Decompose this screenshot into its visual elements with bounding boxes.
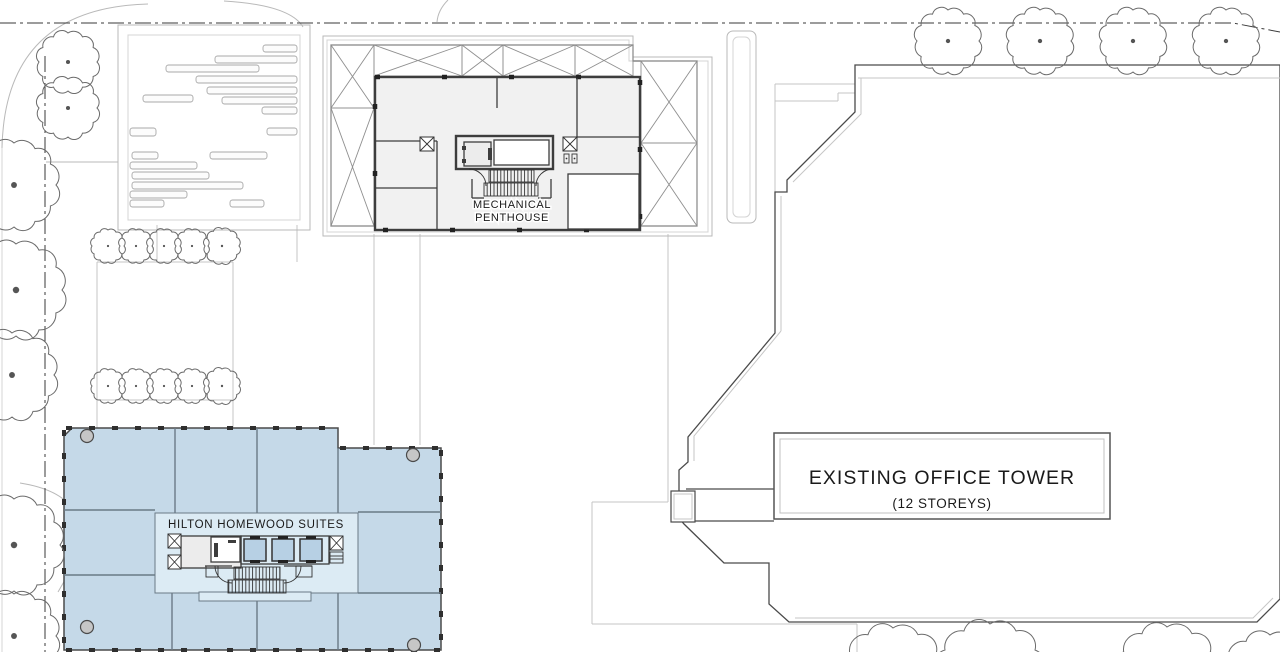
hotel-label: HILTON HOMEWOOD SUITES <box>168 519 344 531</box>
curb-arc-top-left <box>2 4 148 148</box>
elevator-cab <box>272 539 294 561</box>
penthouse-label-line1: MECHANICAL <box>473 199 551 211</box>
hedge-bed <box>97 225 297 428</box>
tree-icon <box>204 228 241 265</box>
office-tower: EXISTING OFFICE TOWER (12 STOREYS) <box>671 65 1280 622</box>
site-plan-drawing: EXISTING OFFICE TOWER (12 STOREYS) <box>0 0 1280 652</box>
hotel-shaft-left-bottom <box>168 555 181 569</box>
column <box>407 449 420 462</box>
mechanical-penthouse: MECHANICAL PENTHOUSE <box>323 36 712 236</box>
tree-icon <box>0 139 60 230</box>
tower-subtitle: (12 STOREYS) <box>892 496 991 511</box>
hotel-building: HILTON HOMEWOOD SUITES <box>64 428 441 652</box>
tree-icon <box>934 620 1047 652</box>
elevator-cab <box>244 539 266 561</box>
tower-title: EXISTING OFFICE TOWER <box>809 467 1075 489</box>
tree-icon <box>0 590 60 652</box>
penthouse-label: MECHANICAL PENTHOUSE <box>473 199 551 224</box>
hotel-shaft-left-top <box>168 534 181 548</box>
tower-label-box: EXISTING OFFICE TOWER (12 STOREYS) <box>774 433 1110 519</box>
tree-icon <box>0 240 66 340</box>
column <box>81 621 94 634</box>
planter-strips <box>130 45 297 207</box>
tower-outline <box>679 65 1280 622</box>
tree-icon <box>839 624 948 652</box>
property-line-north <box>0 23 1280 32</box>
penthouse-shaft-left <box>420 137 434 151</box>
penthouse-elevator <box>464 142 491 166</box>
tree-icon <box>0 329 58 420</box>
site-plan-canvas: EXISTING OFFICE TOWER (12 STOREYS) <box>0 0 1280 652</box>
roof-terrace <box>118 25 310 230</box>
column <box>81 430 94 443</box>
tree-icon <box>0 495 64 595</box>
curb-arc-top-center <box>437 0 448 22</box>
elevator-cab <box>300 539 322 561</box>
promenade-strip <box>727 31 756 223</box>
tree-icon <box>1113 623 1222 652</box>
tree-icon <box>1218 631 1280 652</box>
hotel-shaft-right <box>330 536 343 563</box>
tree-icon <box>204 368 241 405</box>
column <box>408 639 421 652</box>
penthouse-label-line2: PENTHOUSE <box>475 212 549 224</box>
elevator-bank <box>241 536 329 564</box>
